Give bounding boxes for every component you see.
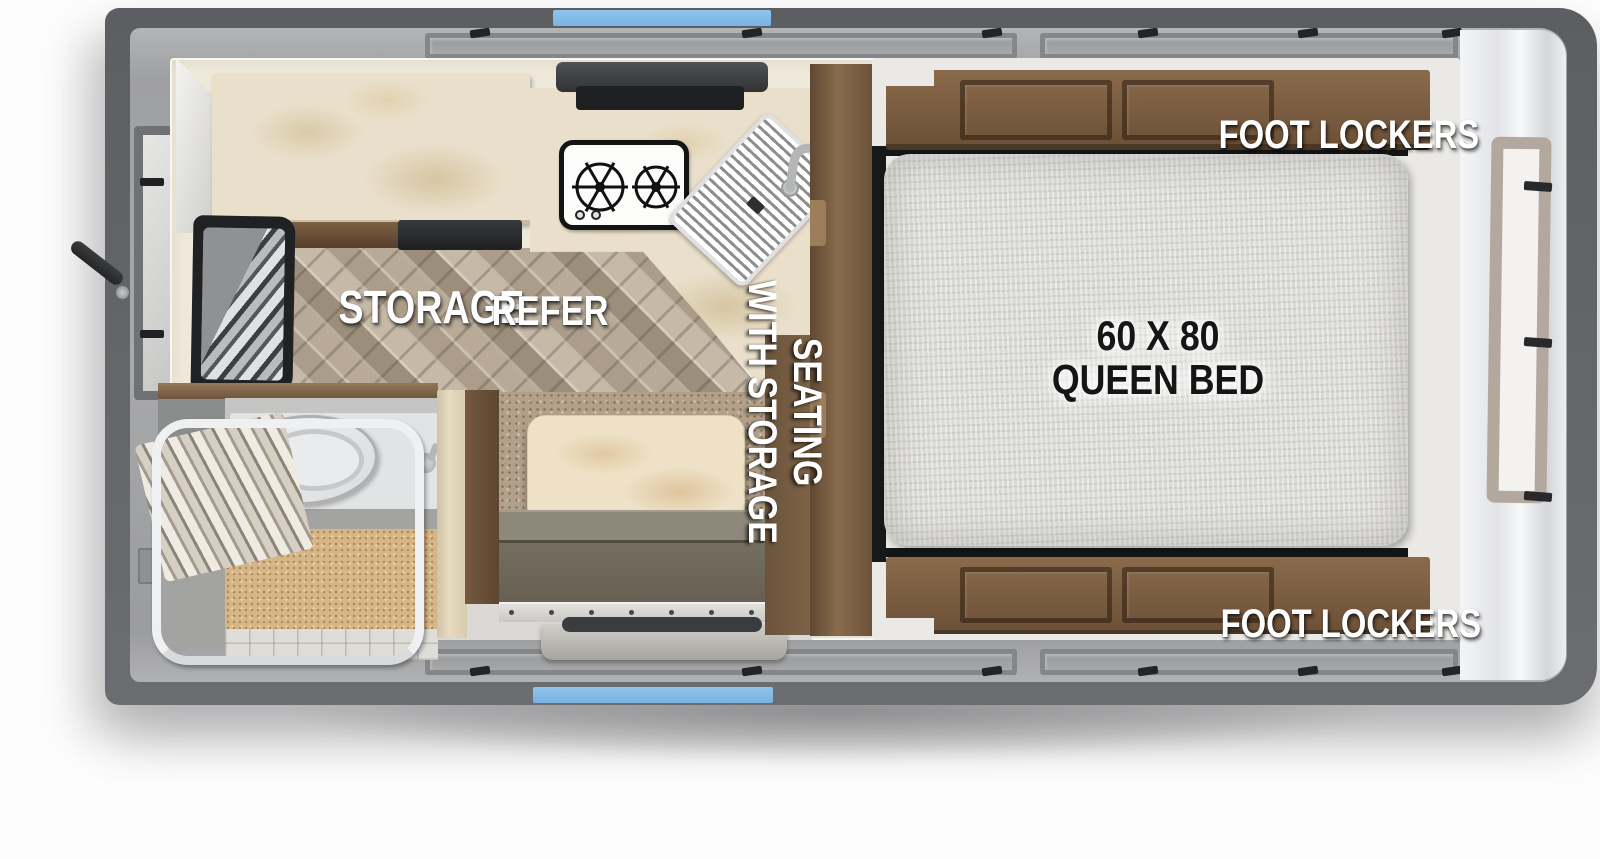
- locker-step: [886, 618, 934, 634]
- platform-step-notch: [810, 200, 826, 246]
- exterior-panel-top-left: [425, 33, 1017, 59]
- door-handle: [562, 617, 762, 632]
- bathroom-pillar: [437, 390, 467, 638]
- bench-seat-front: [499, 540, 767, 602]
- locker-step: [886, 70, 934, 86]
- screw: [749, 610, 754, 615]
- entry-steps-treads: [201, 227, 286, 380]
- dinette-table: [527, 415, 745, 525]
- screw: [709, 610, 714, 615]
- bathroom-cabinet-edge: [158, 383, 438, 399]
- truck-camper-floorplan: STORAGE REFER SEATING WITH STORAGE FOOT …: [0, 0, 1600, 859]
- exterior-panel-bottom-right: [1040, 649, 1458, 675]
- storage-cabinet-counter: [212, 74, 530, 224]
- seating-with-storage-label: SEATING WITH STORAGE: [739, 257, 829, 567]
- screw: [509, 610, 514, 615]
- screw: [629, 610, 634, 615]
- foot-locker-panel: [960, 567, 1112, 623]
- window-clip: [140, 178, 164, 186]
- roof-accent-strip-top: [553, 10, 771, 26]
- screw: [589, 610, 594, 615]
- window-clip: [1524, 181, 1553, 192]
- window-clip: [1524, 337, 1553, 348]
- bench-seat-back: [499, 510, 767, 540]
- screw: [669, 610, 674, 615]
- queen-bed-label: 60 X 80 QUEEN BED: [1033, 314, 1283, 402]
- window-clip: [140, 330, 164, 338]
- bed-gap: [886, 548, 1408, 557]
- window-right: [1486, 137, 1551, 504]
- dinette-wood-trim: [465, 390, 499, 604]
- shower-curtain-rod: [152, 419, 424, 665]
- bathroom: [158, 383, 438, 660]
- roof-accent-strip-bottom: [533, 687, 773, 703]
- ground-shadow: [150, 698, 1520, 818]
- cooktop-burners-icon: [564, 145, 684, 225]
- refrigerator-front: [398, 220, 522, 250]
- sink-drain: [746, 196, 765, 215]
- screw: [549, 610, 554, 615]
- foot-locker-panel: [960, 80, 1112, 140]
- entry-steps: [190, 215, 295, 393]
- exterior-panel-top-right: [1040, 33, 1458, 59]
- range-hood-vent: [576, 86, 744, 110]
- window-clip: [1524, 491, 1553, 502]
- jack-handle-knob: [116, 286, 129, 299]
